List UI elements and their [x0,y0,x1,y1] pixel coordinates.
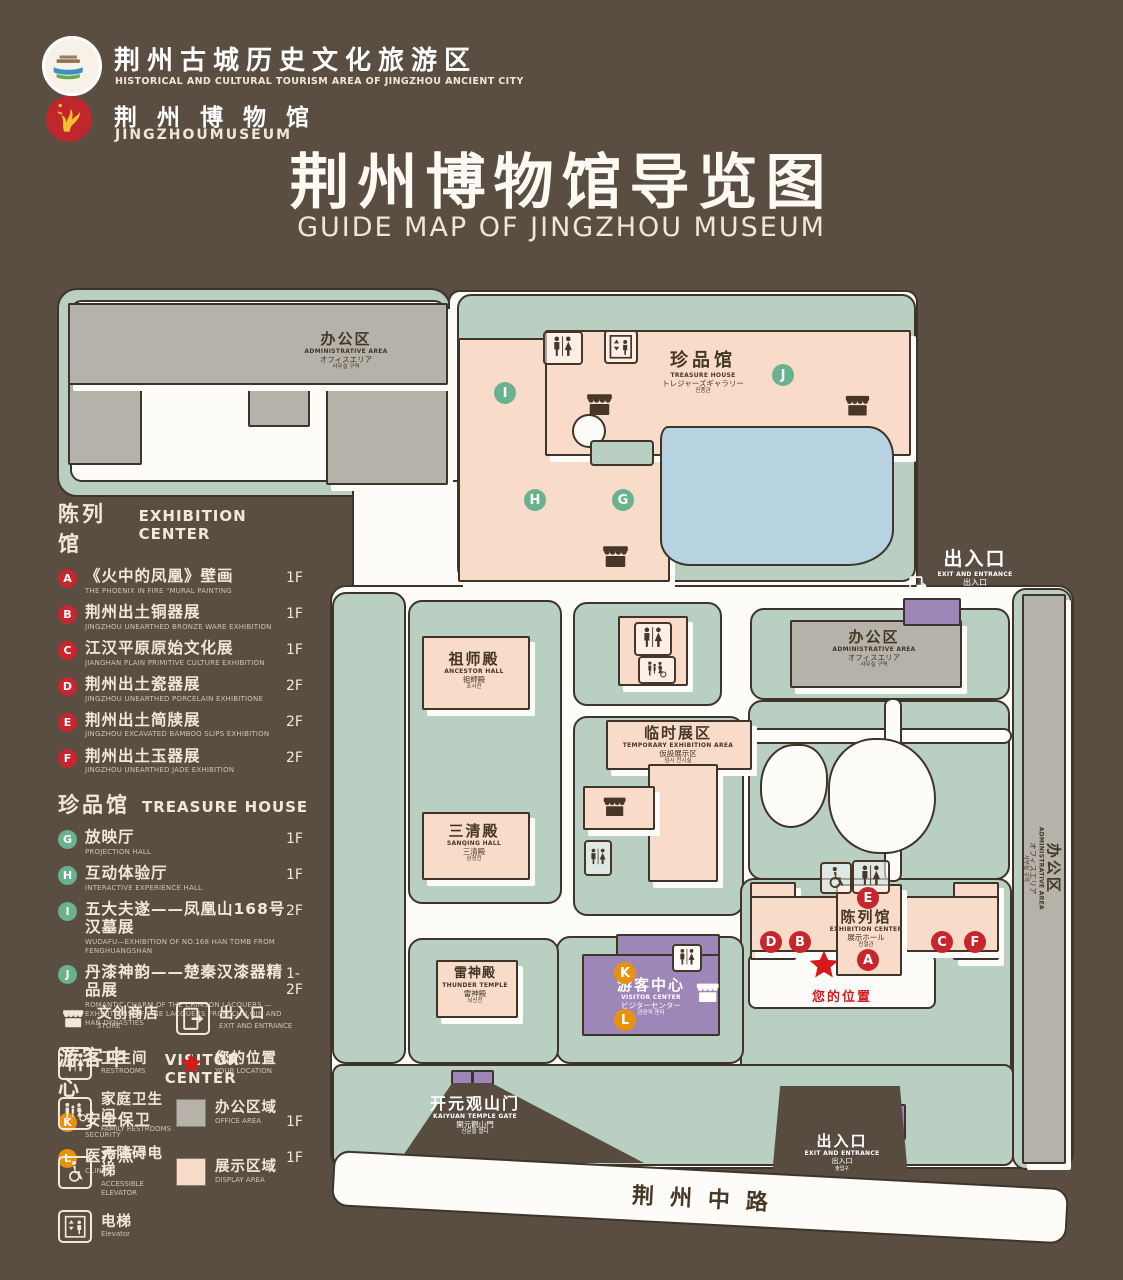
legend-item-I: I 五大夫遂——凤凰山168号汉墓展WUDAFU—EXHIBITION OF N… [58,901,316,956]
legend-store: 文创商店STORE [58,1004,176,1033]
office-area-swatch [176,1099,206,1127]
north-entrance-marker [903,598,961,626]
north-exit-label: 出入口 EXIT AND ENTRANCE 出入口 출입구 [920,548,1030,594]
legend-family-restrooms: 家庭卫生间FAMILY RESTROOMS [58,1092,176,1134]
legend-your-location: 您的位置YOUR LOCATION [176,1049,326,1078]
legend-elevator: 电梯Elevator [58,1210,176,1243]
store-icon [598,792,632,822]
your-location-star-icon [176,1049,206,1078]
family-restroom-icon [58,1097,92,1130]
pond [660,426,894,566]
legend-restrooms: 卫生间RESTROOMS [58,1047,176,1080]
display-area-swatch [176,1158,206,1186]
marker-G: G [612,489,634,511]
legend-item-H: H 互动体验厅INTERACTIVE EXPERIENCE HALL 1F [58,865,316,893]
marker-K: K [614,962,636,984]
page-title: 荆州博物馆导览图 [0,134,1123,221]
south-exit-label: 出入口 EXIT AND ENTRANCE 出入口 출입구 [788,1132,896,1172]
icon-legend: 文创商店STORE 出入口EXIT AND ENTRANCE 卫生间RESTRO… [58,1002,326,1255]
legend-item-F: F 荆州出土玉器展JINGZHOU UNEARTHED JADE EXHIBIT… [58,748,316,776]
marker-I: I [494,382,516,404]
marker-E: E [857,887,879,909]
store-icon [838,390,876,422]
store-icon [580,388,618,422]
sanqing-hall-label: 三清殿 SANQING HALL 三清殿 삼청전 [420,822,528,863]
legend-office-area: 办公区域OFFICE AREA [176,1099,326,1127]
legend-accessible-elevator: 无障碍电梯ACCESSIBLE ELEVATOR [58,1146,176,1198]
marker-J: J [772,364,794,386]
tourism-area-name-en: HISTORICAL AND CULTURAL TOURISM AREA OF … [115,76,524,87]
legend-item-E: E 荆州出土简牍展JINGZHOU EXCAVATED BAMBOO SLIPS… [58,712,316,740]
map-green-left-column [332,592,406,1064]
marker-D: D [760,931,782,953]
store-icon [58,1004,88,1033]
marker-L: L [614,1009,636,1031]
marker-C: C [931,931,953,953]
legend-exit: 出入口EXIT AND ENTRANCE [176,1002,326,1035]
marker-H: H [524,489,546,511]
exhibition-center-label: 陈列馆 EXHIBITION CENTER 展示ホール 진열관 [810,908,922,949]
elevator-icon [604,330,638,364]
admin-right-label: 办公区 ADMINISTRATIVE AREA オフィスエリア 사무실 구역 [1022,798,1063,938]
treasure-house-label: 珍品馆 TREASURE HOUSE トレジャーズギャラリー 진품관 [628,350,778,394]
legend-display-area: 展示区域DISPLAY AREA [176,1158,326,1186]
treasure-green-inset [590,440,654,466]
thunder-temple-label: 雷神殿 THUNDER TEMPLE 雷神殿 뇌신전 [434,966,516,1004]
restroom-icon [584,840,612,876]
legend-item-A: A 《火中的凤凰》壁画THE PHOENIX IN FIRE "MURAL PA… [58,568,316,596]
admin-mid-label: 办公区 ADMINISTRATIVE AREA オフィスエリア 사무실 구역 [812,628,936,669]
restroom-icon [543,331,583,365]
tourism-emblem-icon [45,41,99,91]
legend-item-B: B 荆州出土铜器展JINGZHOU UNEARTHED BRONZE WARE … [58,604,316,632]
restroom-icon [634,622,672,656]
elevator-icon [58,1210,92,1243]
marker-B: B [789,931,811,953]
marker-A: A [857,949,879,971]
tourism-area-name: 荆州古城历史文化旅游区 [114,40,477,77]
restroom-icon [672,944,702,972]
admin-tl-label: 办公区 ADMINISTRATIVE AREA オフィスエリア 사무실 구역 [286,330,406,371]
marker-F: F [964,931,986,953]
garden-pond-path [828,738,936,854]
legend-item-G: G 放映厅PROJECTION HALL 1F [58,829,316,857]
kaiyuan-gate-label: 开元观山门 KAIYUAN TEMPLE GATE 開元觀山門 산문을 열다 [400,1094,550,1136]
your-location-star-icon [806,948,842,982]
exit-door-icon [906,572,930,600]
store-icon [596,540,634,574]
legend-item-D: D 荆州出土瓷器展JINGZHOU UNEARTHED PORCELAIN EX… [58,676,316,704]
page-subtitle: GUIDE MAP OF JINGZHOU MUSEUM [0,212,1123,243]
accessible-elevator-icon [820,862,852,894]
restroom-icon [58,1047,92,1080]
tourism-area-logo [42,36,102,96]
family-restroom-icon [638,656,676,684]
your-location-text: 您的位置 [796,986,888,1005]
accessible-elevator-icon [58,1156,92,1189]
section-treasure-house: 珍品馆 TREASURE HOUSE [58,789,316,819]
exit-door-icon [176,1002,210,1035]
temporary-leg-building [648,764,718,882]
road-label: 荆州中路 [615,1177,784,1218]
section-exhibition-center: 陈列馆 EXHIBITION CENTER [58,498,316,558]
legend-item-C: C 江汉平原原始文化展JIANGHAN PLAIN PRIMITIVE CULT… [58,640,316,668]
temporary-exhibition-label: 临时展区 TEMPORARY EXHIBITION AREA 仮設展示区 임시 … [608,724,748,765]
store-icon [692,978,724,1008]
ancestor-hall-label: 祖师殿 ANCESTOR HALL 祖師殿 조사전 [420,650,528,691]
